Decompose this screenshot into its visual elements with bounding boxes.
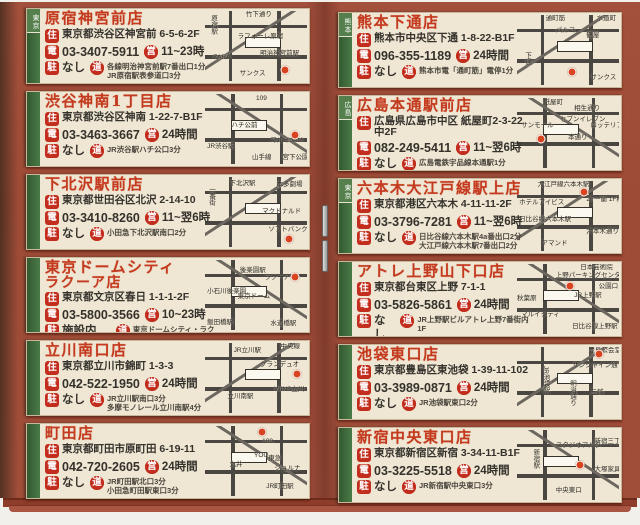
store-hours: 11~翌6時 [473, 141, 521, 155]
store-card: 熊本 熊本下通店 住 熊本市中央区下通 1-8-22-B1F 電 096-355… [338, 12, 622, 88]
access-badge-icon: 道 [90, 227, 104, 241]
store-name: 町田店 [45, 426, 307, 442]
address-badge-icon: 住 [357, 282, 371, 296]
parking-badge-icon: 駐 [45, 61, 59, 75]
store-address: 東京都渋谷区神宮前 6-5-6-2F [62, 29, 200, 41]
parking-access-row: 駐 なし 道 JR池袋駅東口2分 [357, 397, 529, 411]
phone-hours-row: 電 03-3410-8260 営 11~翌6時 [45, 211, 217, 225]
map-label: マクドナルド [262, 209, 301, 216]
store-access: JR渋谷駅ハチ公口3分 [107, 144, 181, 154]
store-phone: 03-3225-5518 [374, 464, 452, 478]
store-parking: なし [374, 314, 395, 337]
address-row: 住 広島県広島市中区 紙屋町2-3-22 中2F [357, 116, 529, 139]
store-access: 小田急下北沢駅南口2分 [107, 227, 186, 237]
hours-badge-icon: 営 [456, 141, 470, 155]
map-marker [290, 130, 299, 139]
map-label: JR池袋駅 [542, 366, 549, 393]
phone-hours-row: 電 082-249-5411 営 11~翌6時 [357, 141, 529, 155]
address-badge-icon: 住 [45, 292, 59, 306]
stacked-page-edge [9, 505, 631, 512]
store-address: 東京都世田谷区北沢 2-14-10 [62, 195, 196, 207]
store-parking: なし [374, 231, 397, 245]
store-card: 下北沢駅前店 住 東京都世田谷区北沢 2-14-10 電 03-3410-826… [26, 174, 310, 250]
address-row: 住 東京都町田市原町田 6-19-11 [45, 444, 217, 458]
address-row: 住 東京都渋谷区神宮前 6-5-6-2F [45, 29, 217, 43]
address-row: 住 東京都渋谷区神南 1-22-7-B1F [45, 112, 217, 126]
access-line-1: 日比谷線六本木駅4a番出口2分 [419, 232, 522, 241]
hours-badge-icon: 営 [145, 377, 159, 391]
store-card: 池袋東口店 住 東京都豊島区東池袋 1-39-11-102 電 03-3989-… [338, 344, 622, 420]
access-line-1: 小田急下北沢駅南口2分 [107, 228, 186, 237]
store-name: 広島本通駅前店 [357, 98, 619, 114]
map-label: ソフトバンク [268, 227, 307, 234]
store-phone: 03-5826-5861 [374, 298, 452, 312]
card-content: 原宿神宮前店 住 東京都渋谷区神宮前 6-5-6-2F 電 03-3407-59… [40, 9, 309, 83]
phone-badge-icon: 電 [357, 49, 371, 63]
access-badge-icon: 道 [402, 157, 416, 171]
store-parking: なし [62, 61, 85, 75]
map-label: JR町田駅 [266, 484, 293, 491]
store-hours: 24時間 [473, 49, 509, 63]
store-access: JR立川駅南口3分 多摩モノレール立川南駅4分 [107, 393, 201, 412]
region-strip [27, 92, 40, 166]
map-label: 日比谷線上野駅 [572, 324, 618, 331]
staple-icon [322, 205, 328, 237]
address-badge-icon: 住 [45, 112, 59, 126]
parking-badge-icon: 駐 [357, 157, 371, 171]
store-parking: なし [374, 397, 397, 411]
card-content: 広島本通駅前店 住 広島県広島市中区 紙屋町2-3-22 中2F 電 082-2… [352, 96, 621, 170]
map-label: 東急 [268, 456, 281, 463]
map-label: マルイJAM [270, 138, 303, 145]
access-line-2: 多摩モノレール立川南駅4分 [107, 403, 201, 412]
card-content: 立川南口店 住 東京都立川市錦町 1-3-3 電 042-522-1950 営 … [40, 341, 309, 415]
store-parking: なし [62, 393, 85, 407]
address-row: 住 東京都世田谷区北沢 2-14-10 [45, 195, 217, 209]
region-strip: 広島 [339, 96, 352, 170]
store-phone: 03-3989-0871 [374, 381, 452, 395]
store-access: 熊本市電「通町筋」電停1分 [419, 65, 513, 75]
address-badge-icon: 住 [357, 33, 371, 47]
store-hours: 24時間 [162, 377, 198, 391]
region-strip [27, 175, 40, 249]
access-badge-icon: 道 [90, 393, 104, 407]
store-name: 六本木大江戸線駅上店 [357, 181, 619, 197]
store-phone: 082-249-5411 [374, 141, 451, 155]
hours-badge-icon: 営 [144, 45, 158, 59]
phone-hours-row: 電 042-522-1950 営 24時間 [45, 377, 217, 391]
parking-access-row: 駐 なし 道 JR上野駅ビルアトレ上野7番街内1F [357, 314, 529, 337]
parking-access-row: 駐 なし 道 JR立川駅南口3分 多摩モノレール立川南駅4分 [45, 393, 217, 412]
map-label: 明治通り [568, 380, 575, 406]
parking-access-row: 駐 なし 道 小田急下北沢駅南口2分 [45, 227, 217, 241]
store-card: 東京 原宿神宮前店 住 東京都渋谷区神宮前 6-5-6-2F 電 03-3407… [26, 8, 310, 84]
region-tab: 熊本 [339, 13, 352, 37]
parking-badge-icon: 駐 [357, 65, 371, 79]
address-badge-icon: 住 [45, 361, 59, 375]
store-access: JR新宿駅中央東口3分 [419, 480, 493, 490]
store-parking: なし [374, 480, 397, 494]
store-card: アトレ上野山下口店 住 東京都台東区上野 7-1-1 電 03-5826-586… [338, 261, 622, 337]
access-line-1: JR新宿駅中央東口3分 [419, 481, 493, 490]
region-strip [339, 428, 352, 502]
store-name-line2: ラクーア店 [45, 276, 307, 291]
store-parking: なし [62, 144, 85, 158]
map-label: 本通り [568, 135, 588, 142]
access-line-2: JR原宿駅表参道口3分 [107, 71, 205, 80]
hours-badge-icon: 営 [456, 49, 470, 63]
store-hours: 11~23時 [161, 45, 204, 59]
parking-badge-icon: 駐 [45, 144, 59, 158]
station-block [245, 369, 281, 380]
store-phone: 03-3410-8260 [62, 211, 140, 225]
store-parking: なし [374, 65, 397, 79]
parking-access-row: 駐 施設内(有料) 道 東京ドームシティ・ラクーア内2F [45, 324, 217, 333]
hours-badge-icon: 営 [145, 211, 159, 225]
map-label: 水道橋駅 [270, 321, 296, 328]
map-label: 宮下公園 [283, 155, 307, 162]
phone-badge-icon: 電 [45, 45, 59, 59]
map-label: JR上野駅 [574, 293, 601, 300]
region-tab: 東京 [27, 9, 40, 33]
access-badge-icon: 道 [402, 65, 416, 79]
store-address: 東京都豊島区東池袋 1-39-11-102 [374, 365, 528, 377]
map-label: アマンド [542, 241, 568, 248]
store-card: 東京 六本木大江戸線駅上店 住 東京都港区六本木 4-11-11-2F 電 03… [338, 178, 622, 254]
map-marker [284, 234, 293, 243]
parking-badge-icon: 駐 [45, 476, 59, 490]
store-address: 熊本市中央区下通 1-8-22-B1F [374, 33, 515, 45]
parking-access-row: 駐 なし 道 熊本市電「通町筋」電停1分 [357, 65, 529, 79]
parking-access-row: 駐 なし 道 広島電鉄宇品線本通駅1分 [357, 157, 529, 171]
phone-badge-icon: 電 [45, 211, 59, 225]
hours-badge-icon: 営 [145, 128, 159, 142]
store-address: 東京都港区六本木 4-11-11-2F [374, 199, 512, 211]
store-access: 日比谷線六本木駅4a番出口2分 大江戸線六本木駅7番出口2分 [419, 231, 522, 250]
map-marker [292, 369, 301, 378]
station-block [557, 41, 593, 52]
map-label: 立川南駅 [227, 394, 253, 401]
region-strip: 東京 [27, 9, 40, 83]
region-strip [339, 262, 352, 336]
region-strip [27, 258, 40, 332]
store-card: 渋谷神南1丁目店 住 東京都渋谷区神南 1-22-7-B1F 電 03-3463… [26, 91, 310, 167]
phone-hours-row: 電 03-3463-3667 営 24時間 [45, 128, 217, 142]
map-label: ハチ公前 [232, 123, 258, 130]
store-parking: なし [62, 476, 85, 490]
store-name: 熊本下通店 [357, 15, 619, 31]
store-address: 東京都立川市錦町 1-3-3 [62, 361, 173, 373]
map-label: 山手線 [252, 155, 272, 162]
store-address: 東京都台東区上野 7-1-1 [374, 282, 485, 294]
phone-hours-row: 電 03-5800-3566 営 10~23時 [45, 308, 217, 322]
store-name: 原宿神宮前店 [45, 11, 307, 27]
hours-badge-icon: 営 [457, 464, 471, 478]
store-address: 東京都文京区春日 1-1-1-2F [62, 292, 189, 304]
phone-hours-row: 電 03-3225-5518 営 24時間 [357, 464, 529, 478]
store-address: 広島県広島市中区 紙屋町2-3-22 中2F [374, 116, 529, 139]
address-badge-icon: 住 [357, 448, 371, 462]
store-phone: 03-3796-7281 [374, 215, 452, 229]
access-badge-icon: 道 [402, 480, 416, 494]
parking-badge-icon: 駐 [45, 324, 59, 333]
map-label: サンクス [240, 71, 266, 78]
access-badge-icon: 道 [90, 61, 104, 75]
map-marker [568, 68, 577, 77]
map-label: 丸井 [230, 462, 243, 469]
map-label: ラフォーレ原宿 [238, 34, 284, 41]
hours-badge-icon: 営 [457, 215, 471, 229]
phone-badge-icon: 電 [45, 308, 59, 322]
access-line-1: 東京ドームシティ・ラクーア内2F [133, 325, 217, 333]
phone-hours-row: 電 03-3407-5911 営 11~23時 [45, 45, 217, 59]
store-hours: 10~23時 [162, 308, 206, 322]
store-phone: 096-355-1189 [374, 49, 451, 63]
map-label: ロッテリア [590, 123, 619, 130]
card-content: 渋谷神南1丁目店 住 東京都渋谷区神南 1-22-7-B1F 電 03-3463… [40, 92, 309, 166]
phone-badge-icon: 電 [45, 460, 59, 474]
store-address: 東京都町田市原町田 6-19-11 [62, 444, 195, 456]
parking-badge-icon: 駐 [45, 227, 59, 241]
card-content: 下北沢駅前店 住 東京都世田谷区北沢 2-14-10 電 03-3410-826… [40, 175, 309, 249]
card-content: 熊本下通店 住 熊本市中央区下通 1-8-22-B1F 電 096-355-11… [352, 13, 621, 87]
parking-badge-icon: 駐 [45, 393, 59, 407]
address-badge-icon: 住 [45, 195, 59, 209]
address-row: 住 熊本市中央区下通 1-8-22-B1F [357, 33, 529, 47]
store-card: 東京ドームシティ ラクーア店 住 東京都文京区春日 1-1-1-2F 電 03-… [26, 257, 310, 333]
store-access: 広島電鉄宇品線本通駅1分 [419, 157, 506, 167]
map-label: 大塚家具 [595, 467, 619, 474]
store-parking: 施設内(有料) [62, 324, 111, 333]
map-label: 六本木通り [586, 229, 619, 236]
access-line-1: 各線明治神宮前駅7番出口1分 [107, 62, 205, 71]
address-row: 住 東京都台東区上野 7-1-1 [357, 282, 529, 296]
store-phone: 042-522-1950 [62, 377, 140, 391]
store-name: 東京ドームシティ [45, 260, 307, 276]
address-row: 住 東京都豊島区東池袋 1-39-11-102 [357, 365, 529, 379]
store-phone: 03-3463-3667 [62, 128, 140, 142]
access-line-1: 熊本市電「通町筋」電停1分 [419, 66, 513, 75]
phone-badge-icon: 電 [357, 298, 371, 312]
address-row: 住 東京都新宿区新宿 3-34-11-B1F [357, 448, 529, 462]
map-marker [537, 134, 546, 143]
access-badge-icon: 道 [402, 397, 416, 411]
phone-hours-row: 電 03-5826-5861 営 24時間 [357, 298, 529, 312]
region-tab: 広島 [339, 96, 352, 120]
store-hours: 24時間 [474, 381, 510, 395]
access-badge-icon: 道 [402, 231, 416, 245]
store-name: 渋谷神南1丁目店 [45, 94, 307, 110]
store-card: 広島 広島本通駅前店 住 広島県広島市中区 紙屋町2-3-22 中2F 電 08… [338, 95, 622, 171]
store-access: JR上野駅ビルアトレ上野7番街内1F [417, 314, 529, 333]
access-line-1: JR渋谷駅ハチ公口3分 [107, 145, 181, 154]
map-label: 三越 [590, 390, 603, 397]
map-label: サンシャイン通り [572, 363, 619, 370]
left-edge-shadow [0, 2, 18, 498]
parking-badge-icon: 駐 [357, 231, 371, 245]
region-tab: 東京 [339, 179, 352, 203]
map-label: サンクス [590, 75, 616, 82]
phone-badge-icon: 電 [357, 464, 371, 478]
map-label: ジョルナ [274, 466, 300, 473]
hours-badge-icon: 営 [145, 460, 159, 474]
address-row: 住 東京都港区六本木 4-11-11-2F [357, 199, 529, 213]
map-marker [576, 461, 585, 470]
address-badge-icon: 住 [357, 365, 371, 379]
access-badge-icon: 道 [116, 324, 130, 333]
store-parking: なし [62, 227, 85, 241]
store-phone: 03-5800-3566 [62, 308, 140, 322]
scanned-brochure-page: 東京 原宿神宮前店 住 東京都渋谷区神宮前 6-5-6-2F 電 03-3407… [0, 0, 640, 525]
store-address: 東京都渋谷区神南 1-22-7-B1F [62, 112, 203, 124]
map-label: WINS立川 [274, 387, 304, 394]
store-hours: 24時間 [162, 128, 198, 142]
map-label: 中央東口 [556, 488, 582, 495]
map-label: グランデュオ [260, 362, 299, 369]
region-strip: 熊本 [339, 13, 352, 87]
region-strip [27, 424, 40, 498]
region-strip [27, 341, 40, 415]
card-content: アトレ上野山下口店 住 東京都台東区上野 7-1-1 電 03-5826-586… [352, 262, 621, 336]
access-line-1: JR上野駅ビルアトレ上野7番街内1F [417, 315, 529, 333]
parking-access-row: 駐 なし 道 JR町田駅北口3分 小田急町田駅東口3分 [45, 476, 217, 495]
store-address: 東京都新宿区新宿 3-34-11-B1F [374, 448, 520, 460]
store-access: 各線明治神宮前駅7番出口1分 JR原宿駅表参道口3分 [107, 61, 205, 80]
card-content: 新宿中央東口店 住 東京都新宿区新宿 3-34-11-B1F 電 03-3225… [352, 428, 621, 502]
map-marker [566, 282, 575, 291]
store-hours: 24時間 [162, 460, 198, 474]
phone-badge-icon: 電 [45, 377, 59, 391]
store-hours: 11~翌6時 [474, 215, 522, 229]
phone-hours-row: 電 03-3796-7281 営 11~翌6時 [357, 215, 529, 229]
map-label: YOU [254, 453, 268, 460]
access-line-1: 広島電鉄宇品線本通駅1分 [419, 158, 506, 167]
store-hours: 11~翌6時 [162, 211, 210, 225]
map-label: 新宿駅 [531, 449, 538, 469]
access-line-2: 大江戸線六本木駅7番出口2分 [419, 241, 522, 250]
phone-badge-icon: 電 [357, 215, 371, 229]
parking-badge-icon: 駐 [357, 314, 371, 328]
store-name: 池袋東口店 [357, 347, 619, 363]
store-card: 立川南口店 住 東京都立川市錦町 1-3-3 電 042-522-1950 営 … [26, 340, 310, 416]
store-hours: 24時間 [474, 298, 510, 312]
hours-badge-icon: 営 [457, 298, 471, 312]
access-line-2: 小田急町田駅東口3分 [107, 486, 179, 495]
store-access: JR町田駅北口3分 小田急町田駅東口3分 [107, 476, 179, 495]
address-badge-icon: 住 [45, 444, 59, 458]
access-badge-icon: 道 [90, 144, 104, 158]
store-access: JR池袋駅東口2分 [419, 397, 478, 407]
address-badge-icon: 住 [357, 199, 371, 213]
store-hours: 24時間 [474, 464, 510, 478]
parking-access-row: 駐 なし 道 JR新宿駅中央東口3分 [357, 480, 529, 494]
hours-badge-icon: 営 [145, 308, 159, 322]
parking-access-row: 駐 なし 道 JR渋谷駅ハチ公口3分 [45, 144, 217, 158]
phone-hours-row: 電 096-355-1189 営 24時間 [357, 49, 529, 63]
access-line-1: JR池袋駅東口2分 [419, 398, 478, 407]
phone-hours-row: 電 042-720-2605 営 24時間 [45, 460, 217, 474]
store-phone: 042-720-2605 [62, 460, 140, 474]
map-label: 公園口 [599, 284, 619, 291]
phone-badge-icon: 電 [45, 128, 59, 142]
region-strip [339, 345, 352, 419]
card-content: 池袋東口店 住 東京都豊島区東池袋 1-39-11-102 電 03-3989-… [352, 345, 621, 419]
map-label: 明治神宮前駅 [260, 51, 299, 58]
phone-badge-icon: 電 [357, 381, 371, 395]
store-column-left: 東京 原宿神宮前店 住 東京都渋谷区神宮前 6-5-6-2F 電 03-3407… [26, 8, 310, 499]
parking-badge-icon: 駐 [357, 397, 371, 411]
store-name: 立川南口店 [45, 343, 307, 359]
phone-hours-row: 電 03-3989-0871 営 24時間 [357, 381, 529, 395]
map-label: 東京ドーム [238, 294, 270, 301]
region-strip: 東京 [339, 179, 352, 253]
store-parking: なし [374, 157, 397, 171]
store-phone: 03-3407-5911 [62, 45, 139, 59]
access-badge-icon: 道 [400, 314, 414, 328]
store-access: 東京ドームシティ・ラクーア内2F [133, 324, 217, 333]
station-block [543, 456, 579, 467]
hours-badge-icon: 営 [457, 381, 471, 395]
map-label: 鶴屋 [586, 33, 599, 40]
address-badge-icon: 住 [357, 116, 371, 130]
access-badge-icon: 道 [90, 476, 104, 490]
card-content: 町田店 住 東京都町田市原町田 6-19-11 電 042-720-2605 営… [40, 424, 309, 498]
map-marker [280, 65, 289, 74]
address-row: 住 東京都文京区春日 1-1-1-2F [45, 292, 217, 306]
card-content: 東京ドームシティ ラクーア店 住 東京都文京区春日 1-1-1-2F 電 03-… [40, 258, 309, 332]
parking-access-row: 駐 なし 道 各線明治神宮前駅7番出口1分 JR原宿駅表参道口3分 [45, 61, 217, 80]
store-name: アトレ上野山下口店 [357, 264, 619, 280]
staple-icon [322, 240, 328, 272]
parking-badge-icon: 駐 [357, 480, 371, 494]
access-line-1: JR立川駅南口3分 [107, 394, 201, 403]
phone-badge-icon: 電 [357, 141, 371, 155]
parking-access-row: 駐 なし 道 日比谷線六本木駅4a番出口2分 大江戸線六本木駅7番出口2分 [357, 231, 529, 250]
address-badge-icon: 住 [45, 29, 59, 43]
store-name: 下北沢駅前店 [45, 177, 307, 193]
store-column-right: 熊本 熊本下通店 住 熊本市中央区下通 1-8-22-B1F 電 096-355… [338, 12, 622, 503]
access-line-1: JR町田駅北口3分 [107, 477, 179, 486]
store-name: 新宿中央東口店 [357, 430, 619, 446]
store-card: 新宿中央東口店 住 東京都新宿区新宿 3-34-11-B1F 電 03-3225… [338, 427, 622, 503]
store-card: 町田店 住 東京都町田市原町田 6-19-11 電 042-720-2605 営… [26, 423, 310, 499]
address-row: 住 東京都立川市錦町 1-3-3 [45, 361, 217, 375]
map-label: 2F一蘭 1F松屋 [586, 197, 619, 204]
card-content: 六本木大江戸線駅上店 住 東京都港区六本木 4-11-11-2F 電 03-37… [352, 179, 621, 253]
